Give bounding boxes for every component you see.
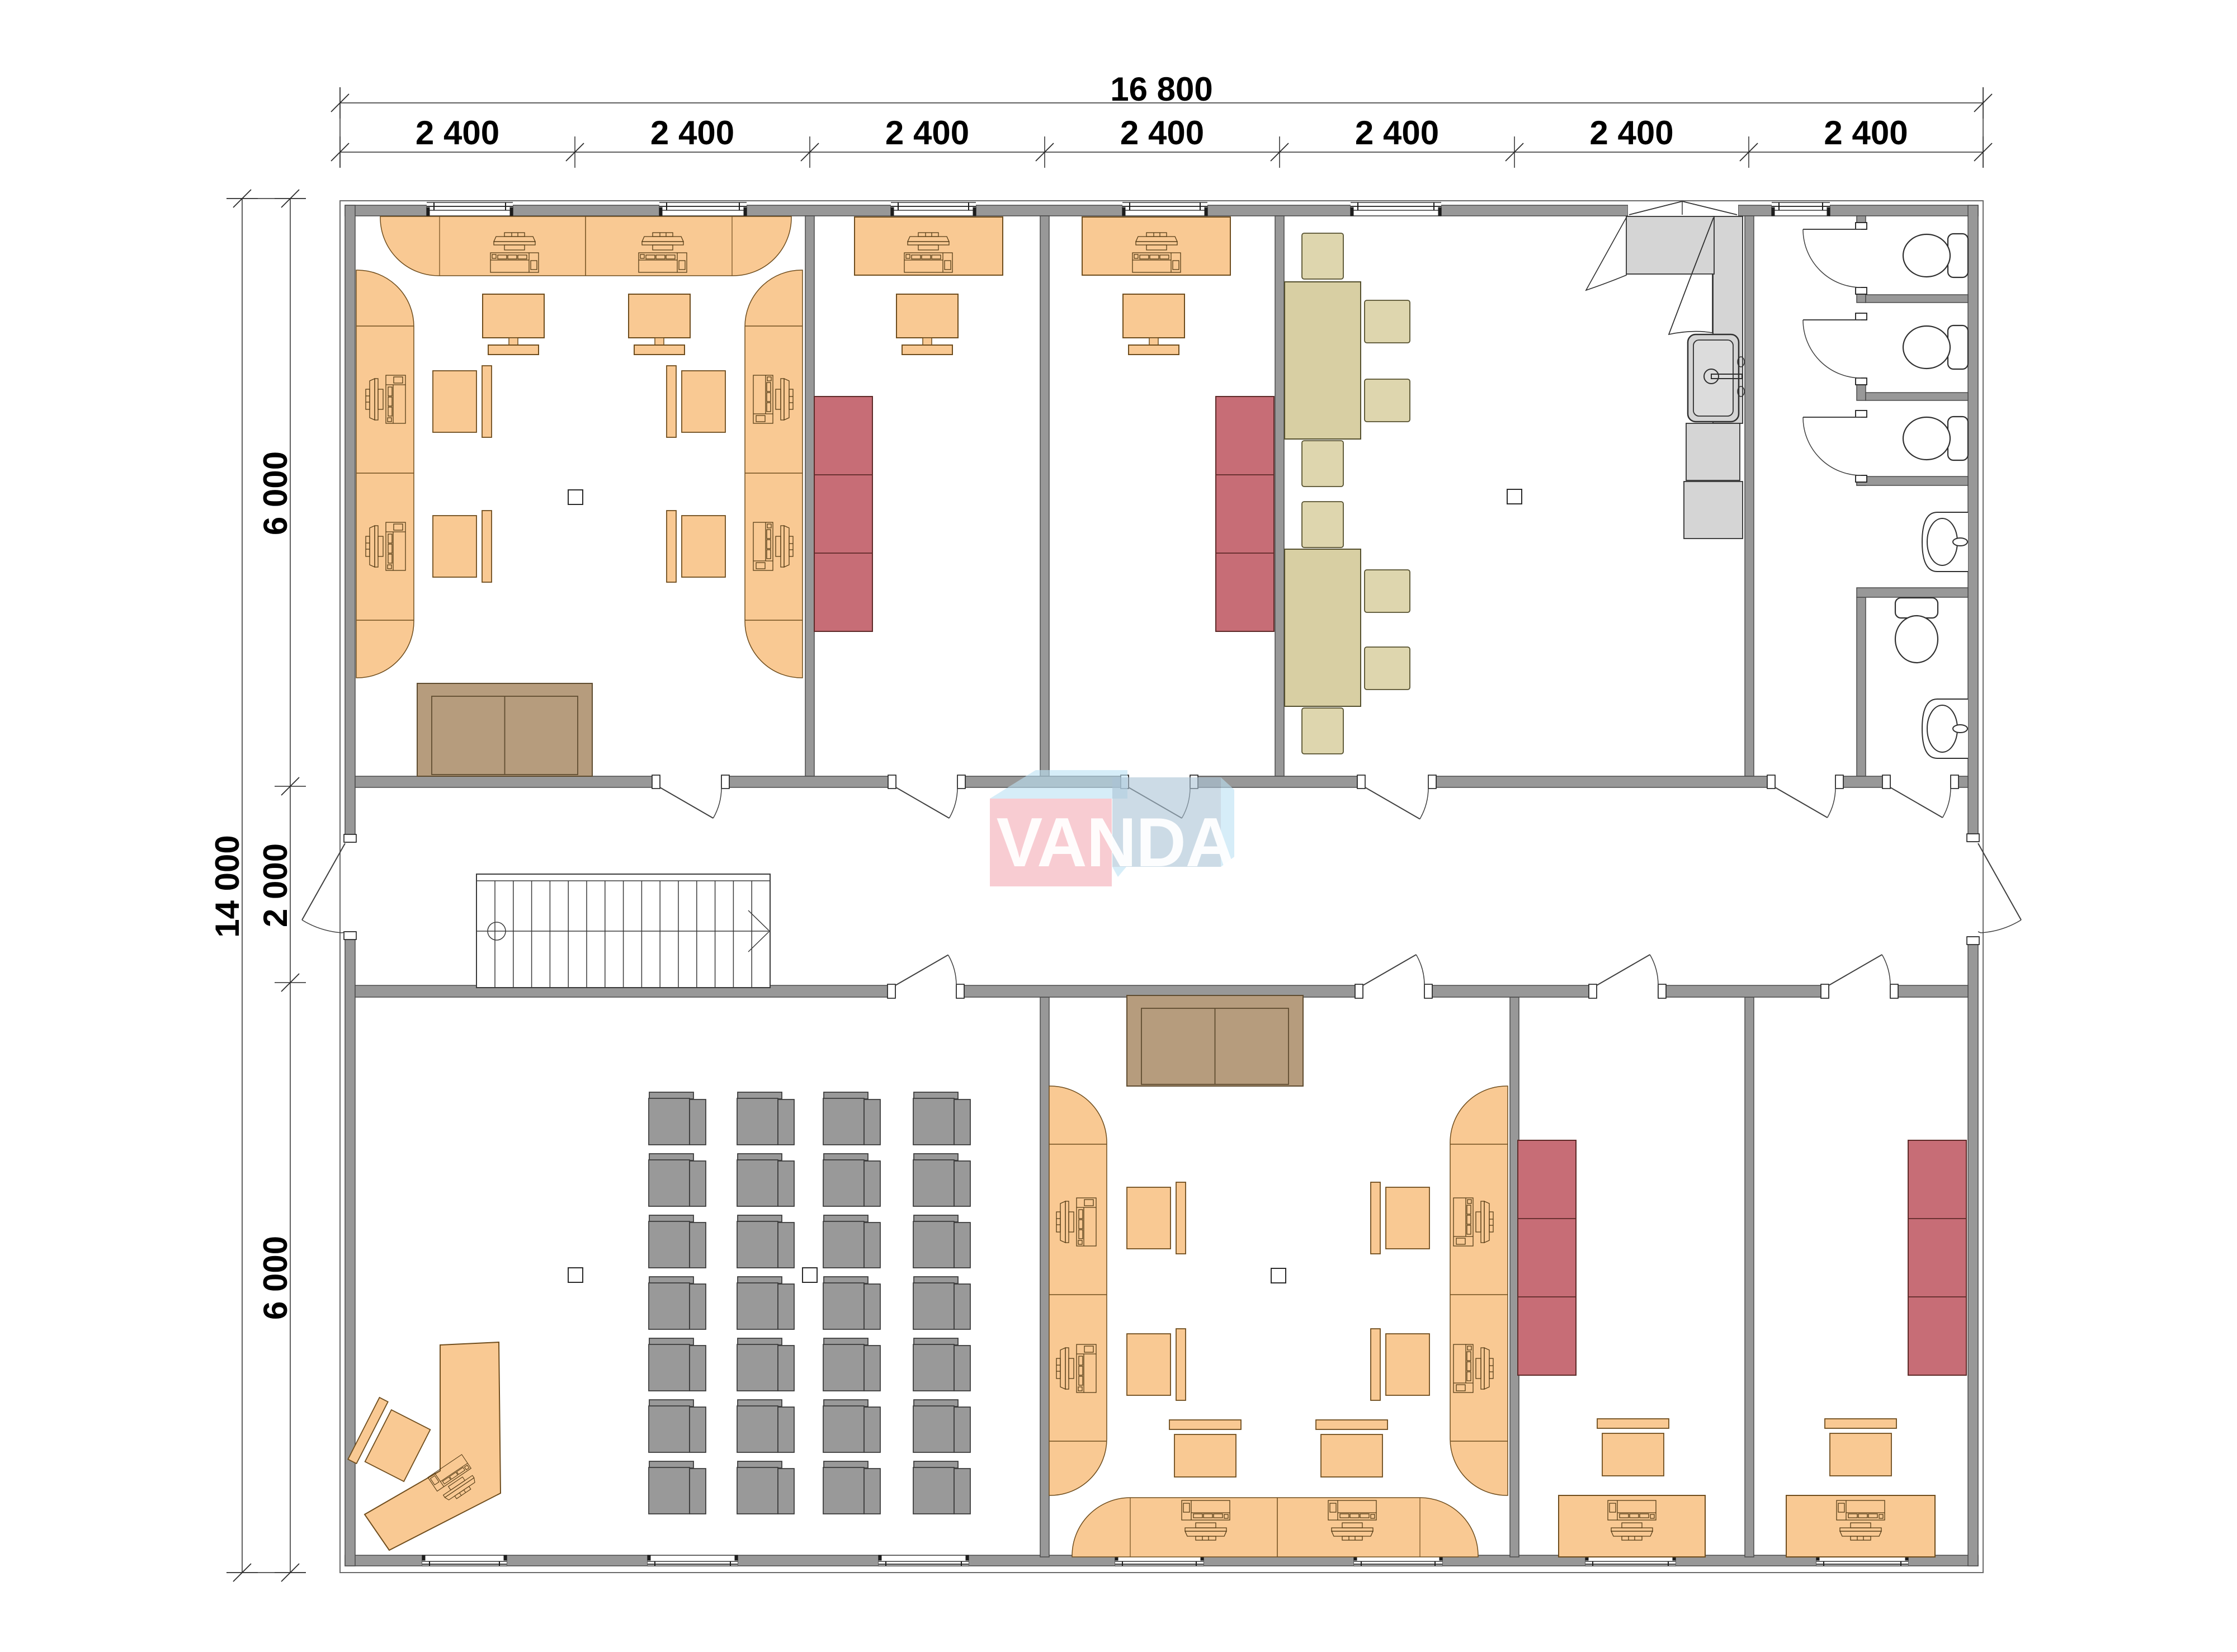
svg-text:2 400: 2 400 <box>1824 114 1908 152</box>
svg-text:2 400: 2 400 <box>1589 114 1673 152</box>
svg-text:6 000: 6 000 <box>257 451 294 535</box>
svg-text:2 000: 2 000 <box>257 843 294 927</box>
svg-text:2 400: 2 400 <box>1355 114 1439 152</box>
svg-text:16 800: 16 800 <box>1110 70 1213 108</box>
svg-text:2 400: 2 400 <box>885 114 969 152</box>
svg-text:6 000: 6 000 <box>257 1236 294 1320</box>
svg-text:VANDA: VANDA <box>997 804 1235 881</box>
svg-text:2 400: 2 400 <box>650 114 734 152</box>
svg-text:2 400: 2 400 <box>1120 114 1204 152</box>
svg-text:14 000: 14 000 <box>209 835 246 938</box>
svg-text:2 400: 2 400 <box>416 114 499 152</box>
